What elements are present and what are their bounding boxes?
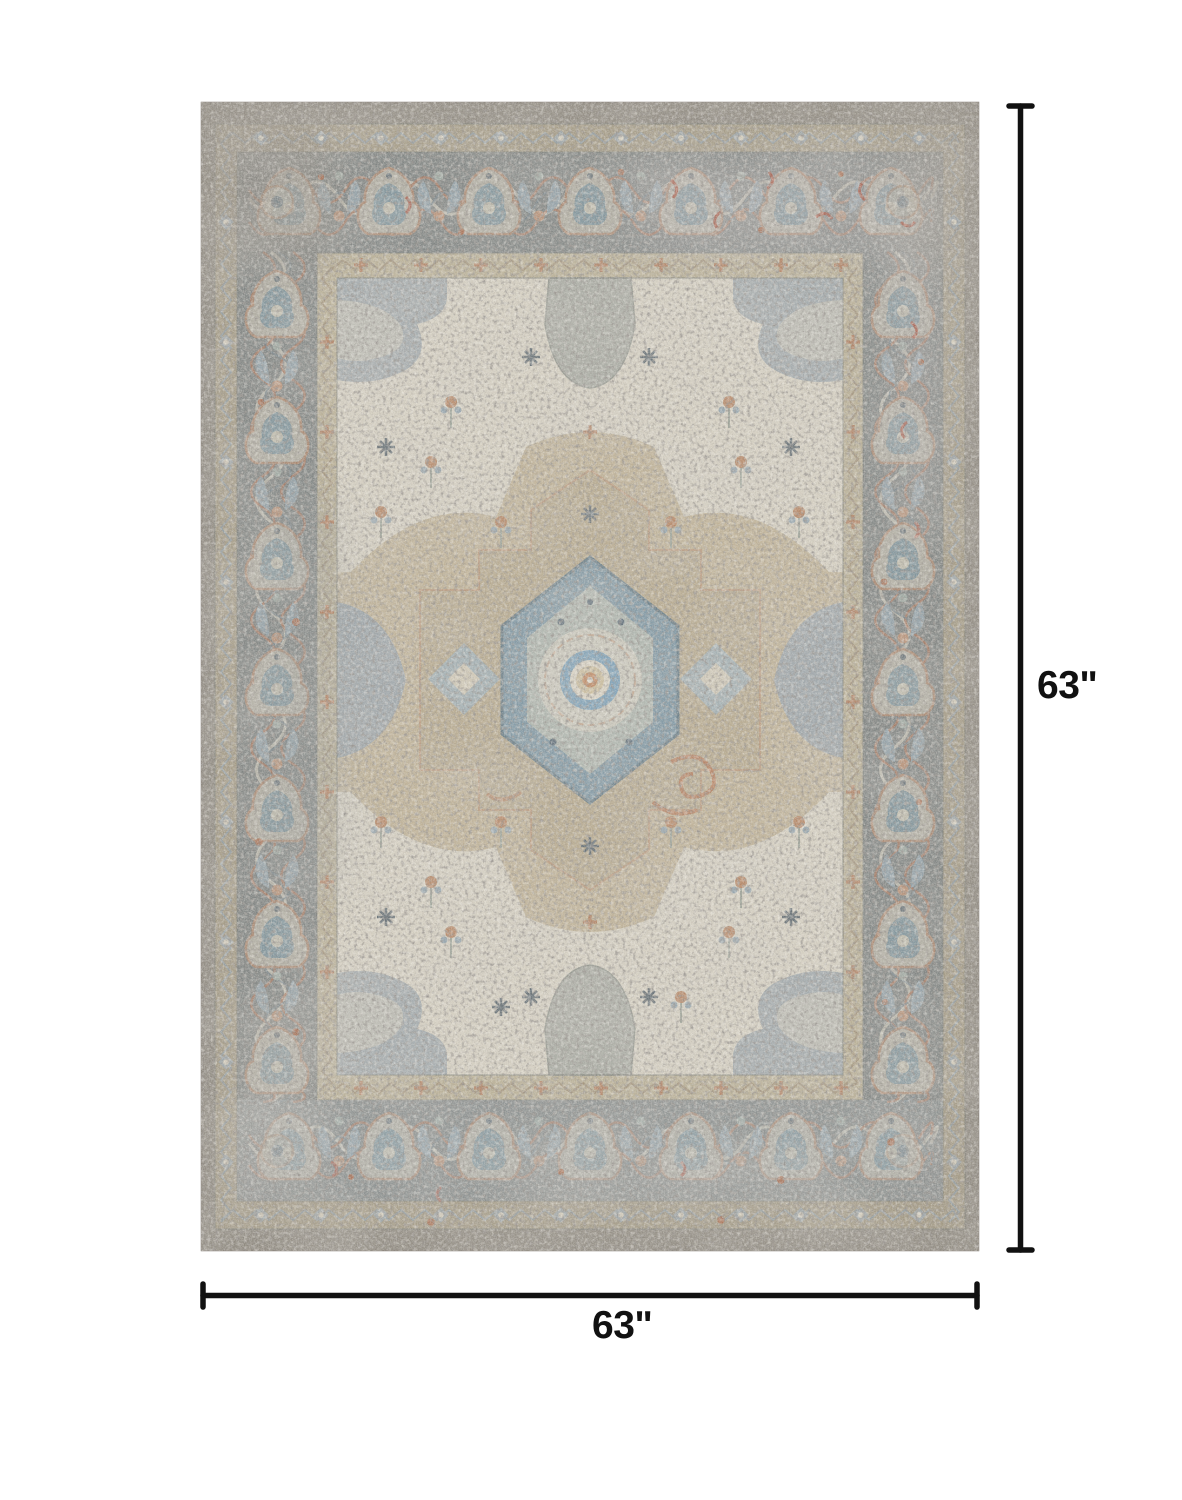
svg-text:63": 63"	[592, 1304, 652, 1347]
svg-text:63": 63"	[1037, 664, 1097, 707]
